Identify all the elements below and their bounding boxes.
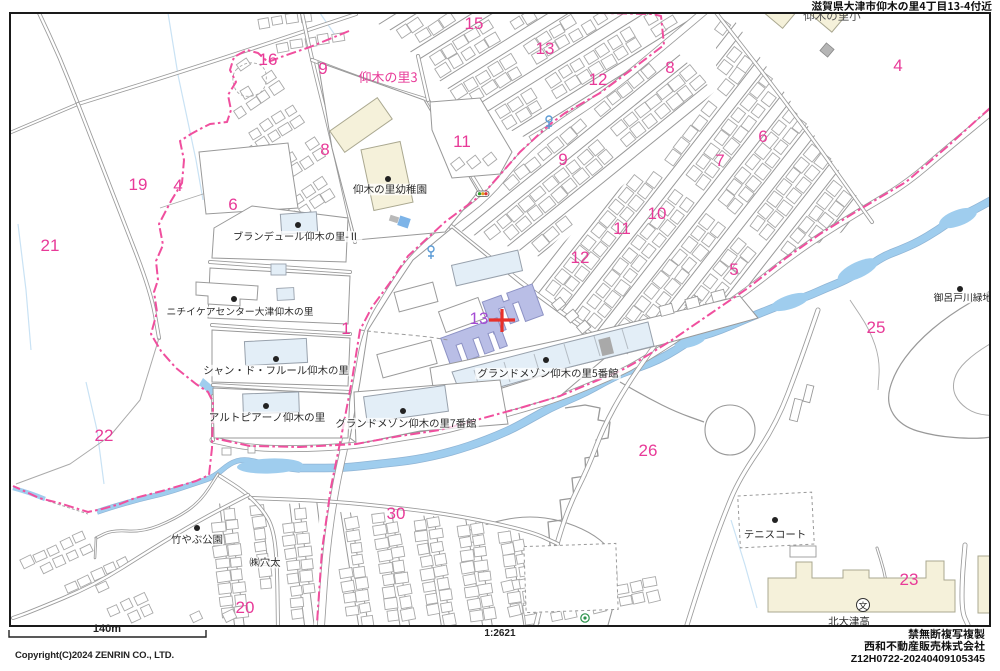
svg-text:13: 13: [470, 309, 489, 328]
svg-text:11: 11: [613, 219, 631, 238]
svg-text:21: 21: [41, 236, 60, 255]
svg-text:20: 20: [236, 598, 255, 617]
svg-text:25: 25: [867, 318, 886, 337]
svg-text:140m: 140m: [93, 623, 121, 635]
svg-text:1: 1: [341, 319, 350, 338]
svg-text:4: 4: [893, 56, 902, 75]
svg-text:9: 9: [558, 150, 567, 169]
svg-text:11: 11: [453, 132, 471, 151]
svg-text:13: 13: [536, 39, 555, 58]
svg-text:Z12H0722-20240409105345: Z12H0722-20240409105345: [851, 653, 985, 665]
svg-text:6: 6: [228, 195, 237, 214]
svg-text:23: 23: [900, 570, 919, 589]
svg-text:1:2621: 1:2621: [484, 628, 516, 639]
svg-text:Copyright(C)2024 ZENRIN CO., L: Copyright(C)2024 ZENRIN CO., LTD.: [15, 650, 174, 661]
svg-text:6: 6: [758, 127, 767, 146]
svg-text:7: 7: [715, 151, 724, 170]
svg-text:15: 15: [465, 14, 484, 33]
svg-text:16: 16: [259, 50, 278, 69]
svg-text:12: 12: [589, 70, 608, 89]
svg-text:8: 8: [320, 140, 329, 159]
svg-text:8: 8: [665, 58, 674, 77]
svg-text:19: 19: [129, 175, 148, 194]
svg-text:9: 9: [318, 59, 327, 78]
svg-text:22: 22: [95, 426, 114, 445]
svg-text:30: 30: [387, 504, 406, 523]
svg-text:5: 5: [729, 260, 738, 279]
svg-text:4: 4: [173, 176, 182, 195]
svg-text:26: 26: [639, 441, 658, 460]
svg-text:10: 10: [648, 204, 667, 223]
svg-text:12: 12: [571, 248, 590, 267]
